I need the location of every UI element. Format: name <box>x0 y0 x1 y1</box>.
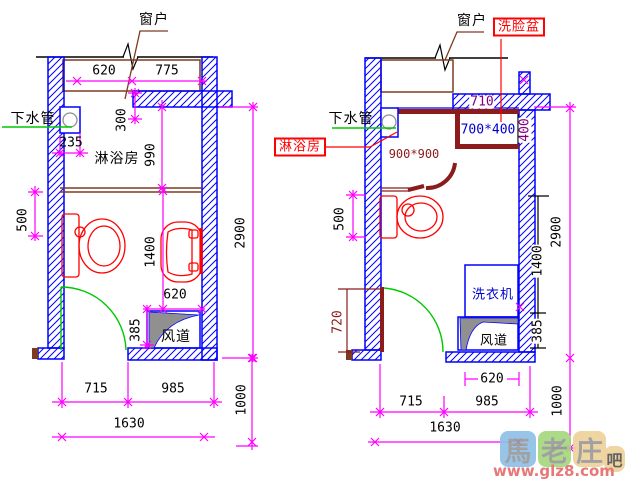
right-wall-east <box>519 110 535 352</box>
left-wall-north-band <box>133 91 232 107</box>
left-wall-end-cap <box>32 348 38 359</box>
shower-door-leaf <box>408 186 424 190</box>
dim-win-b: 775 <box>155 65 178 78</box>
right-wall-west <box>365 58 381 350</box>
dim-bot-b-right: 985 <box>475 396 498 409</box>
watermark-url: www.glz8.com <box>493 462 615 480</box>
left-door <box>61 287 126 350</box>
right-plan <box>321 32 576 452</box>
right-wall-south <box>446 352 535 362</box>
dim-door-right: 720 <box>332 309 345 334</box>
shower-size-label: 900*900 <box>389 148 440 160</box>
dim-duct-w-right: 620 <box>479 373 504 386</box>
dim-duct-w-left: 620 <box>163 289 186 302</box>
left-drain-label: 下水管 <box>11 112 56 126</box>
shower-bottom-wall <box>381 188 410 191</box>
dim-below-right: 1000 <box>552 385 565 416</box>
washer-label: 洗衣机 <box>472 289 514 302</box>
right-window-label: 窗户 <box>457 14 487 28</box>
dim-room-h-left: 2900 <box>235 217 248 248</box>
dim-toilet-span-left: 1400 <box>145 236 158 267</box>
right-drain-label: 下水管 <box>329 112 374 126</box>
faucet-icon <box>189 230 198 238</box>
right-door-swing-arc <box>384 288 443 352</box>
dim-total-right: 1630 <box>429 422 460 435</box>
dim-total-left: 1630 <box>113 418 144 431</box>
dim-duct-h-right: 385 <box>532 318 545 343</box>
shower-door-arc <box>426 163 455 188</box>
left-duct-label: 风道 <box>161 330 191 344</box>
dim-side-left: 500 <box>17 208 30 231</box>
basin-depth-label: 400 <box>519 117 532 142</box>
right-shower-enclosure <box>381 163 455 191</box>
floor-plan-drawing: 窗户 下水管 淋浴房 风道 620 775 235 300 990 500 29… <box>0 0 627 484</box>
left-toilet <box>62 214 125 277</box>
right-door-leaf <box>380 287 384 352</box>
dim-bot-b-left: 985 <box>161 383 184 396</box>
right-top-exterior-line <box>365 45 508 70</box>
left-shower-label: 淋浴房 <box>95 152 140 166</box>
dim-duct-h-left: 385 <box>130 318 143 341</box>
dim-shower-depth: 990 <box>145 143 158 166</box>
dim-below-left: 1000 <box>236 384 249 415</box>
break-symbol <box>435 45 450 70</box>
dim-room-h-right: 2900 <box>551 216 564 247</box>
basin-size-label: 700*400 <box>461 124 516 137</box>
left-wall-south <box>128 348 217 360</box>
left-sink <box>161 222 202 282</box>
dim-drain-off: 300 <box>116 108 129 131</box>
right-toilet <box>380 196 443 238</box>
dim-wall-seg: 710 <box>469 96 494 109</box>
right-basin-label: 洗脸盆 <box>493 18 545 37</box>
dim-toilet-span-right: 1400 <box>532 244 545 277</box>
left-wall-south-step <box>38 348 64 359</box>
left-door-swing-arc <box>61 287 126 350</box>
left-shower-divider <box>60 188 202 192</box>
dim-drain-w: 235 <box>59 137 82 150</box>
left-plan <box>2 31 258 450</box>
right-duct-label: 风道 <box>480 335 508 348</box>
left-window <box>63 60 200 91</box>
right-window <box>381 60 453 92</box>
right-window-leader-line <box>445 32 484 60</box>
faucet-icon <box>189 263 198 271</box>
right-shower-label: 淋浴房 <box>274 138 326 157</box>
dim-bot-a-right: 715 <box>399 396 422 409</box>
left-window-label: 窗户 <box>139 13 169 27</box>
dim-side-right: 500 <box>334 207 347 230</box>
dim-win-a: 620 <box>92 65 115 78</box>
dim-bot-a-left: 715 <box>84 383 107 396</box>
